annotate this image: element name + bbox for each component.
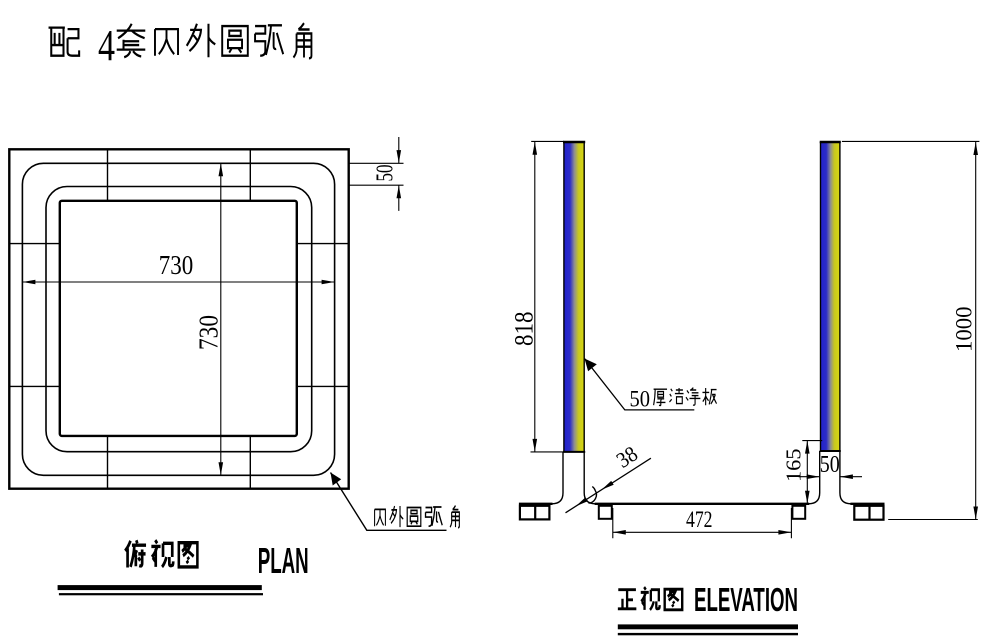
svg-text:PLAN: PLAN	[258, 540, 309, 581]
svg-text:730: 730	[159, 250, 194, 280]
svg-text:4: 4	[98, 21, 115, 70]
svg-text:50: 50	[373, 165, 399, 182]
svg-text:818: 818	[510, 312, 539, 347]
svg-text:50: 50	[630, 387, 651, 412]
svg-text:50: 50	[820, 452, 840, 478]
svg-text:472: 472	[686, 507, 713, 533]
svg-text:1000: 1000	[952, 307, 977, 353]
svg-text:730: 730	[194, 315, 224, 350]
svg-text:ELEVATION: ELEVATION	[694, 581, 798, 618]
svg-text:38: 38	[612, 441, 642, 473]
